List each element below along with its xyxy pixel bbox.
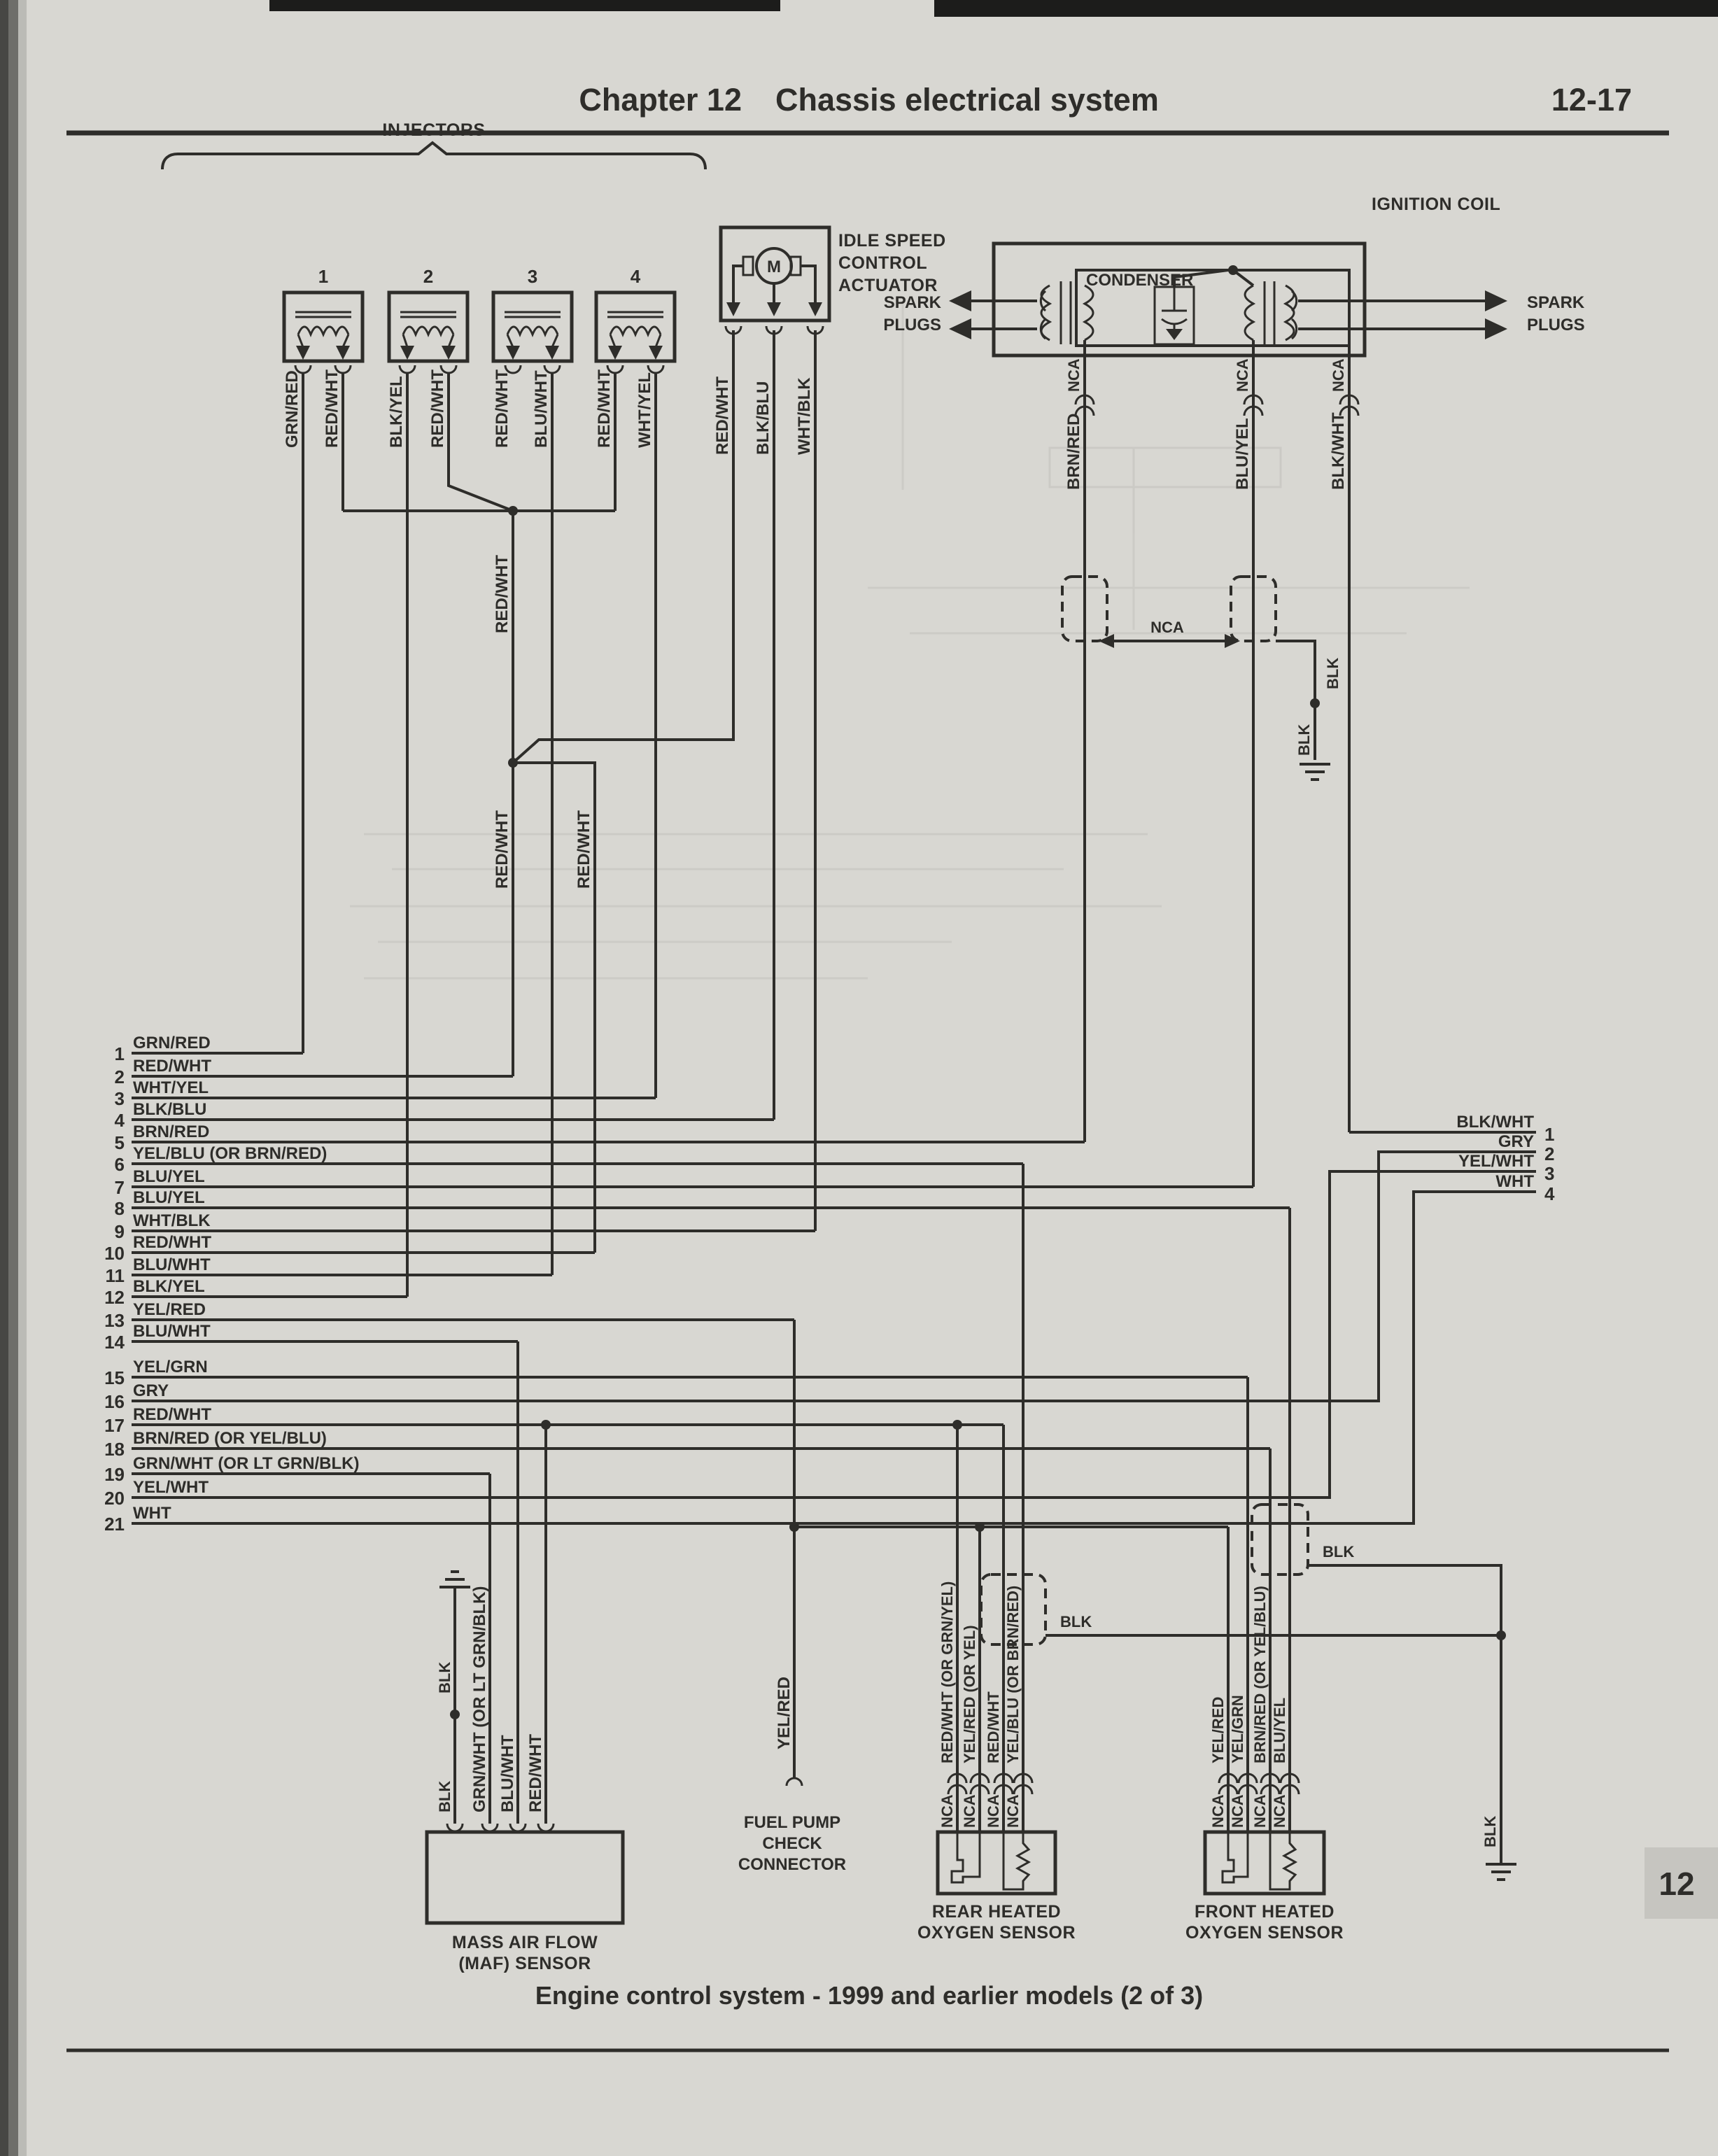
pin-label: YEL/BLU (OR BRN/RED) [133,1144,327,1163]
chapter-tab-number: 12 [1659,1866,1694,1902]
wire-label: BLK [1323,1543,1354,1560]
scan-edge-strip [934,0,1718,17]
wire-label: RED/WHT (OR GRN/YEL) [938,1581,956,1763]
pin-label: YEL/WHT [133,1478,209,1497]
pin-number: 21 [104,1514,125,1535]
injector-4-box [596,293,675,361]
maf-box [427,1832,623,1923]
arrow-right-icon [1485,318,1507,339]
pin-label: YEL/WHT [1458,1152,1534,1171]
pin-number: 1 [1544,1124,1554,1145]
wire-label: BLK [436,1781,453,1812]
wire-label: RED/WHT [526,1734,545,1812]
wire-label: RED/WHT [575,810,593,889]
front-o2-label: FRONT HEATED [1195,1902,1335,1922]
pin-label: BLU/YEL [133,1167,205,1186]
splice-dot [1310,698,1320,708]
page-footer: Engine control system - 1999 and earlier… [66,1847,1718,2050]
left-pin-list: 1GRN/RED 2RED/WHT 3WHT/YEL 4BLK/BLU 5BRN… [104,1034,1290,1535]
maf-label: MASS AIR FLOW [452,1933,598,1952]
wire-label: WHT/BLK [795,377,814,455]
wire-label: RED/WHT [713,376,732,455]
isca-label: CONTROL [838,253,927,273]
transformer-icon-right [1245,281,1297,344]
wire-label: BLU/YEL [1271,1698,1288,1763]
chapter-title: Chapter 12 [579,82,742,118]
injector-3-box [493,293,572,361]
fuel-pump-label: FUEL PUMP [744,1813,840,1832]
arrow-left-icon [949,318,971,339]
wire-label: RED/WHT [985,1691,1002,1763]
pin-label: BRN/RED (OR YEL/BLU) [133,1429,327,1448]
front-o2-label: OXYGEN SENSOR [1185,1923,1344,1943]
binding-shadow-fade [18,0,27,2156]
pin-label: RED/WHT [133,1405,211,1424]
wire-label: BLK [436,1662,453,1693]
pin-label: BRN/RED [133,1122,209,1141]
pin-label: BLK/WHT [1456,1113,1534,1132]
wire-label: YEL/GRN [1229,1695,1246,1763]
page-header: Chapter 12 Chassis electrical system 12-… [66,82,1669,133]
splice-dot [789,1522,799,1532]
scan-edge-strip [269,0,780,11]
pin-number: 14 [104,1332,125,1353]
fuel-pump-label: CONNECTOR [738,1855,846,1874]
wire-label: YEL/RED [1209,1697,1227,1763]
spark-plugs-label: PLUGS [1527,316,1585,334]
pin-label: RED/WHT [133,1233,211,1252]
pin-number: 19 [104,1464,125,1485]
wire-label: RED/WHT [493,369,512,448]
pin-number: 12 [104,1287,125,1308]
nca-label: NCA [1251,1794,1269,1828]
pin-label: WHT/YEL [133,1078,209,1097]
pin-number: 13 [104,1310,125,1331]
pin-number: 9 [115,1221,125,1242]
injector-2-number: 2 [423,266,433,287]
pin-number: 8 [115,1198,125,1219]
pin-label: GRN/WHT (OR LT GRN/BLK) [133,1454,360,1473]
section-title: Chassis electrical system [775,82,1159,118]
pin-number: 3 [115,1088,125,1109]
front-o2-sensor-component: YEL/RED YEL/GRN BRN/RED (OR YEL/BLU) BLU… [1185,1586,1344,1943]
pin-number: 10 [104,1243,125,1264]
motor-brush-icon [743,257,753,275]
inline-connector-icons [948,1774,1032,1794]
scanned-manual-page: Chapter 12 Chassis electrical system 12-… [0,0,1718,2156]
ignition-coil-component: IGNITION COIL CONDENSER S [883,195,1585,1187]
pin-number: 15 [104,1367,125,1388]
nca-link-label: NCA [1150,619,1184,636]
resistor-icon [1004,1832,1029,1889]
nca-label: NCA [1209,1794,1227,1828]
wire-label: BLK [1295,724,1313,756]
pin-label: BLU/WHT [133,1322,211,1341]
pin-label: GRY [133,1381,169,1400]
injector-1-box [284,293,362,361]
pin-number: 18 [104,1439,125,1460]
injector-4-number: 4 [631,266,641,287]
pin-number: 4 [1544,1183,1555,1204]
wire-label: BLU/WHT [498,1735,517,1812]
pin-label: BLU/WHT [133,1255,211,1274]
nca-label: NCA [985,1794,1002,1828]
nca-label: NCA [961,1794,978,1828]
heater-icon [1223,1832,1248,1882]
isca-wires [513,330,815,1253]
wire-label: BLK [1481,1816,1499,1847]
wire-label: RED/WHT [428,369,447,448]
pin-label: WHT [133,1504,171,1523]
left-pin-rows: 1GRN/RED 2RED/WHT 3WHT/YEL 4BLK/BLU 5BRN… [104,1034,359,1535]
rear-o2-label: OXYGEN SENSOR [917,1923,1076,1943]
pin-label: GRY [1498,1132,1534,1151]
ground-icon [1486,1864,1516,1880]
wire-label: BLU/WHT [532,370,551,448]
wire-label: BRN/RED (OR YEL/BLU) [1251,1586,1269,1763]
pin-number: 7 [115,1177,125,1198]
motor-letter: M [767,258,781,276]
pin-number: 5 [115,1132,125,1153]
injector-3-number: 3 [528,266,537,287]
nca-label: NCA [1065,358,1083,392]
maf-label: (MAF) SENSOR [458,1954,591,1973]
resistor-icon [1270,1832,1295,1889]
splice-dot [1496,1630,1506,1640]
transformer-icon-left [1041,281,1093,344]
pin-label: RED/WHT [133,1057,211,1076]
wire-label: RED/WHT [595,369,614,448]
wire-label: BLK [1324,658,1342,689]
inline-connector-icons [1219,1774,1299,1794]
fuel-pump-check-connector: YEL/RED FUEL PUMP CHECK CONNECTOR [738,1677,846,1874]
pin-label: YEL/RED [133,1300,206,1319]
isca-label: IDLE SPEED [838,231,946,251]
wire-label: GRN/WHT (OR LT GRN/BLK) [470,1586,489,1813]
pin-label: GRN/RED [133,1034,211,1052]
maf-connector-cups [447,1824,554,1831]
heater-icon [952,1832,980,1882]
splice-dot [508,506,518,516]
pin-label: BLK/BLU [133,1100,206,1119]
scan-artifacts [0,0,1718,2156]
arrow-right-icon [1485,290,1507,311]
wire-label: BLK/YEL [387,376,406,448]
arrow-left-icon [949,290,971,311]
pin-number: 1 [115,1043,125,1064]
pin-label: BLU/YEL [133,1188,205,1207]
dashed-connector-icon [1252,1505,1308,1574]
front-o2-box [1205,1832,1324,1894]
injectors-label: INJECTORS [382,120,485,140]
wire-label: BLK [1060,1613,1092,1630]
nca-label: NCA [1229,1794,1246,1828]
isca-label: ACTUATOR [838,276,938,295]
isca-arrow-icons [726,302,822,316]
ignition-coil-label: IGNITION COIL [1372,195,1500,214]
pin-number: 6 [115,1154,125,1175]
bottom-wiring: BLK BLK BLK [450,1164,1516,1880]
injector-arrow-icons [296,346,663,360]
wire-label: GRN/RED [283,370,302,448]
nca-label: NCA [1234,358,1251,392]
wire-label: BLK/WHT [1329,412,1348,490]
binding-shadow-dark [0,0,8,2156]
left-pin-lines [132,1053,1290,1474]
nca-label: NCA [1271,1794,1288,1828]
injector-2-box [389,293,467,361]
wire-label: YEL/RED [775,1677,794,1749]
pin-number: 20 [104,1488,125,1509]
inline-connector-icons [1076,395,1358,416]
diagram-caption: Engine control system - 1999 and earlier… [535,1981,1203,2010]
injector-1-number: 1 [318,266,328,287]
splice-dot [450,1710,460,1719]
connector-end-icon [787,1778,802,1786]
pin-label: WHT [1495,1172,1534,1191]
wire-label: RED/WHT [323,369,342,448]
nca-label: NCA [1330,358,1347,392]
page-number: 12-17 [1551,82,1632,118]
splice-dot [1228,265,1238,275]
injectors-brace [162,143,705,169]
nca-label: NCA [938,1794,956,1828]
wire-label: YEL/BLU (OR BRN/RED) [1004,1586,1022,1763]
wire-label: RED/WHT [493,555,512,633]
splice-dot [975,1522,985,1532]
ground-icon [1300,764,1330,780]
wire-label: BLU/YEL [1233,418,1252,490]
pin-number: 4 [115,1110,125,1131]
pin-label: WHT/BLK [133,1211,211,1230]
wire-label: WHT/YEL [635,372,654,448]
spark-plugs-label: PLUGS [883,316,941,334]
wiring-diagram-svg: Chapter 12 Chassis electrical system 12-… [0,0,1718,2156]
spark-plugs-label: SPARK [884,293,942,312]
injector-coil-icons [295,312,663,347]
pin-number: 3 [1544,1163,1554,1184]
pin-number: 2 [1544,1143,1554,1164]
pin-number: 17 [104,1415,125,1436]
wire-label: RED/WHT [493,810,512,889]
pin-label: YEL/GRN [133,1358,208,1376]
ground-icon [439,1572,470,1587]
nca-label: NCA [1004,1794,1022,1828]
pin-number: 16 [104,1391,125,1412]
spark-plug-arrows-right [1298,290,1507,339]
wire-label: BLK/BLU [754,381,773,455]
condenser-icon [1155,287,1194,344]
pin-number: 11 [106,1265,125,1286]
wire-label: BRN/RED [1064,414,1083,490]
fuel-pump-label: CHECK [762,1834,822,1853]
spark-plugs-label: SPARK [1527,293,1585,312]
pin-number: 2 [115,1066,125,1087]
pin-label: BLK/YEL [133,1277,205,1296]
rear-o2-label: REAR HEATED [932,1902,1061,1922]
rear-o2-box [938,1832,1055,1894]
wire-label: YEL/RED (OR YEL) [961,1625,978,1763]
